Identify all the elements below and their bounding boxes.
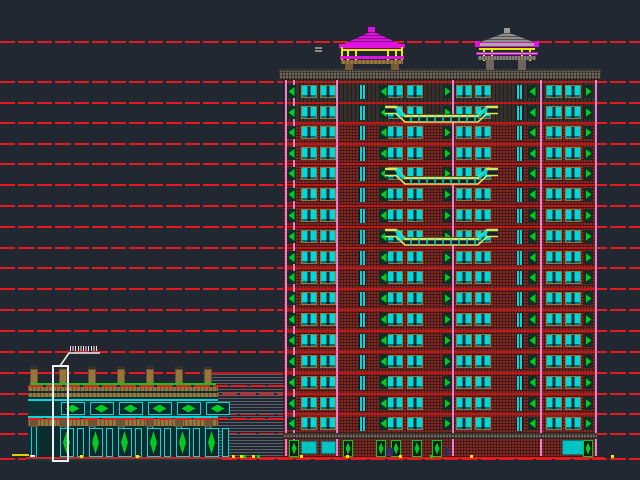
corner-window xyxy=(287,292,296,305)
vesica-ornament xyxy=(208,431,215,454)
slit-window xyxy=(359,397,366,411)
window-unit xyxy=(475,188,491,201)
window-unit xyxy=(301,126,317,139)
corner-window xyxy=(584,251,593,264)
corner-window xyxy=(528,313,537,326)
door-ornament xyxy=(435,443,440,455)
slit-window xyxy=(359,313,366,327)
corner-window xyxy=(379,313,388,326)
podium-side-panel xyxy=(222,428,229,457)
yellow-mark xyxy=(12,454,29,456)
slit-window xyxy=(359,292,366,306)
slit-window xyxy=(359,147,366,161)
pavilion-eave xyxy=(475,42,539,47)
pavilion-beam xyxy=(340,56,404,59)
balcony-railing xyxy=(384,104,499,123)
window-unit xyxy=(301,251,317,264)
tower-floor-slab-line xyxy=(284,81,596,83)
corner-window xyxy=(584,417,593,430)
window-unit xyxy=(475,313,491,326)
ground-dot xyxy=(80,455,83,458)
green-chevron-glyph xyxy=(445,253,451,262)
corner-window xyxy=(584,167,593,180)
window-unit xyxy=(387,147,403,160)
corner-window xyxy=(287,271,296,284)
corner-window xyxy=(379,355,388,368)
slit-window xyxy=(516,397,523,411)
window-unit xyxy=(546,188,562,201)
window-unit xyxy=(301,376,317,389)
corner-window xyxy=(443,292,452,305)
door-ornament xyxy=(292,443,297,455)
tower-axis-line xyxy=(452,80,454,456)
tower-floor-slab-line xyxy=(284,247,596,249)
window-ornament xyxy=(95,405,109,413)
window-unit xyxy=(301,188,317,201)
slit-window xyxy=(516,85,523,99)
ground-dot xyxy=(243,455,246,458)
tower-cornice xyxy=(279,69,601,80)
green-chevron-glyph xyxy=(586,378,592,387)
corner-window xyxy=(379,334,388,347)
window-unit xyxy=(387,355,403,368)
corner-window xyxy=(584,271,593,284)
window-unit xyxy=(475,376,491,389)
window-unit xyxy=(546,209,562,222)
corner-window xyxy=(287,167,296,180)
green-chevron-glyph xyxy=(381,378,387,387)
green-chevron-glyph xyxy=(586,87,592,96)
corner-window xyxy=(443,85,452,98)
window-unit xyxy=(320,334,336,347)
corner-window xyxy=(443,417,452,430)
window-unit xyxy=(407,209,423,222)
window-unit xyxy=(387,397,403,410)
green-chevron-glyph xyxy=(289,190,295,199)
tower-floor-slab-line xyxy=(284,163,596,165)
green-chevron-glyph xyxy=(289,294,295,303)
window-unit xyxy=(456,209,472,222)
window-unit xyxy=(546,251,562,264)
green-chevron-glyph xyxy=(530,108,536,117)
window-unit xyxy=(320,271,336,284)
slit-window xyxy=(516,355,523,369)
window-unit xyxy=(407,251,423,264)
podium-side-panel xyxy=(106,428,113,457)
window-unit xyxy=(456,397,472,410)
slit-window xyxy=(359,106,366,120)
window-unit xyxy=(546,106,562,119)
green-chevron-glyph xyxy=(381,253,387,262)
corner-window xyxy=(287,188,296,201)
corner-window xyxy=(287,85,296,98)
green-chevron-glyph xyxy=(381,190,387,199)
green-chevron-glyph xyxy=(530,294,536,303)
white-mark xyxy=(30,455,35,457)
tower-floor-slab-line xyxy=(284,413,596,415)
green-chevron-glyph xyxy=(289,419,295,428)
window-unit xyxy=(387,126,403,139)
pavilion-roof xyxy=(342,31,402,45)
corner-window xyxy=(584,313,593,326)
window-unit xyxy=(407,376,423,389)
window-unit xyxy=(301,85,317,98)
window-unit xyxy=(301,397,317,410)
window-unit xyxy=(407,355,423,368)
green-chevron-glyph xyxy=(381,273,387,282)
podium-window xyxy=(90,402,114,415)
green-chevron-glyph xyxy=(530,190,536,199)
corner-window xyxy=(528,334,537,347)
vesica-ornament xyxy=(179,431,186,454)
green-chevron-glyph xyxy=(289,108,295,117)
corner-window xyxy=(528,355,537,368)
corner-window xyxy=(584,188,593,201)
corner-window xyxy=(528,209,537,222)
window-unit xyxy=(456,292,472,305)
window-ornament xyxy=(153,405,167,413)
green-chevron-glyph xyxy=(586,169,592,178)
slit-window xyxy=(359,209,366,223)
window-unit xyxy=(301,209,317,222)
window-unit xyxy=(475,417,491,430)
window-unit xyxy=(301,271,317,284)
window-unit xyxy=(565,230,581,243)
slit-window xyxy=(359,417,366,431)
tower-floor-slab-line xyxy=(284,372,596,374)
window-unit xyxy=(387,85,403,98)
slit-window xyxy=(516,209,523,223)
cad-drawing-canvas[interactable] xyxy=(0,0,640,480)
window-unit xyxy=(456,417,472,430)
door-ornament xyxy=(415,443,420,455)
window-unit xyxy=(546,292,562,305)
window-unit xyxy=(301,292,317,305)
window-unit xyxy=(475,292,491,305)
corner-window xyxy=(379,126,388,139)
window-unit xyxy=(565,271,581,284)
corner-window xyxy=(584,376,593,389)
green-chevron-glyph xyxy=(289,87,295,96)
window-unit xyxy=(475,209,491,222)
ground-dot xyxy=(430,455,433,458)
window-unit xyxy=(407,85,423,98)
corner-window xyxy=(528,271,537,284)
window-unit xyxy=(387,313,403,326)
detail-callout-box xyxy=(52,365,69,462)
corner-window xyxy=(528,188,537,201)
corner-window xyxy=(379,271,388,284)
slit-window xyxy=(516,271,523,285)
green-chevron-glyph xyxy=(445,211,451,220)
window-unit xyxy=(565,85,581,98)
slit-window xyxy=(359,126,366,140)
corner-window xyxy=(287,376,296,389)
window-unit xyxy=(320,251,336,264)
green-chevron-glyph xyxy=(586,419,592,428)
window-unit xyxy=(320,188,336,201)
balcony-railing xyxy=(384,166,499,185)
window-unit xyxy=(387,334,403,347)
window-unit xyxy=(456,376,472,389)
podium-side-panel xyxy=(135,428,142,457)
window-unit xyxy=(565,355,581,368)
ground-dot xyxy=(252,455,255,458)
window-unit xyxy=(546,355,562,368)
window-unit xyxy=(565,334,581,347)
green-chevron-glyph xyxy=(530,378,536,387)
pavilion-eave-tip xyxy=(534,41,539,47)
entrance-door xyxy=(432,440,442,457)
green-chevron-glyph xyxy=(586,232,592,241)
green-chevron-glyph xyxy=(445,336,451,345)
green-chevron-glyph xyxy=(530,273,536,282)
corner-window xyxy=(379,397,388,410)
corner-window xyxy=(528,167,537,180)
ground-dot xyxy=(232,455,235,458)
callout-label-ticks xyxy=(70,346,98,351)
window-unit xyxy=(320,292,336,305)
corner-window xyxy=(528,292,537,305)
green-chevron-glyph xyxy=(381,399,387,408)
slit-window xyxy=(516,167,523,181)
green-chevron-glyph xyxy=(586,336,592,345)
podium-door-panel xyxy=(176,428,190,457)
podium-door-panel xyxy=(147,428,161,457)
ground-dot xyxy=(346,455,349,458)
window-unit xyxy=(475,334,491,347)
entrance-door xyxy=(289,440,299,457)
window-unit xyxy=(546,313,562,326)
corner-window xyxy=(584,292,593,305)
person-figure xyxy=(446,447,449,456)
corner-window xyxy=(443,209,452,222)
green-chevron-glyph xyxy=(586,294,592,303)
window-unit xyxy=(407,417,423,430)
pavilion-beam xyxy=(476,52,538,55)
corner-window xyxy=(528,85,537,98)
window-unit xyxy=(407,271,423,284)
podium-pilaster-cap xyxy=(146,366,154,384)
slit-window xyxy=(516,251,523,265)
slit-window xyxy=(516,313,523,327)
corner-window xyxy=(584,85,593,98)
window-unit xyxy=(546,397,562,410)
window-unit xyxy=(546,334,562,347)
green-chevron-glyph xyxy=(289,211,295,220)
window-ornament xyxy=(182,405,196,413)
corner-window xyxy=(443,397,452,410)
window-unit xyxy=(320,106,336,119)
window-unit xyxy=(407,313,423,326)
corner-window xyxy=(287,417,296,430)
green-chevron-glyph xyxy=(586,357,592,366)
green-chevron-glyph xyxy=(289,232,295,241)
podium-pilaster-cap xyxy=(175,366,183,384)
window-unit xyxy=(456,271,472,284)
corner-window xyxy=(287,251,296,264)
green-chevron-glyph xyxy=(381,149,387,158)
window-unit xyxy=(546,417,562,430)
green-chevron-glyph xyxy=(530,357,536,366)
person-figure xyxy=(390,448,393,456)
corner-window xyxy=(443,334,452,347)
green-chevron-glyph xyxy=(289,253,295,262)
slit-window xyxy=(516,188,523,202)
window-unit xyxy=(475,85,491,98)
window-unit xyxy=(407,397,423,410)
corner-window xyxy=(584,230,593,243)
green-chevron-glyph xyxy=(586,315,592,324)
tower-lintel-band xyxy=(283,433,597,439)
window-unit xyxy=(475,147,491,160)
green-chevron-glyph xyxy=(530,128,536,137)
green-chevron-glyph xyxy=(445,87,451,96)
pavilion-eave-tip xyxy=(475,41,480,47)
corner-window xyxy=(443,126,452,139)
corner-window xyxy=(379,292,388,305)
window-unit xyxy=(565,376,581,389)
window-unit xyxy=(320,167,336,180)
green-chevron-glyph xyxy=(586,211,592,220)
window-unit xyxy=(320,313,336,326)
window-unit xyxy=(565,251,581,264)
green-chevron-glyph xyxy=(445,357,451,366)
green-chevron-glyph xyxy=(445,190,451,199)
podium-window xyxy=(177,402,201,415)
ground-dot xyxy=(399,455,402,458)
tower-floor-slab-line xyxy=(284,143,596,145)
door-ornament xyxy=(346,443,351,455)
vesica-ornament xyxy=(150,431,157,454)
corner-window xyxy=(443,376,452,389)
podium-pilaster xyxy=(31,427,37,458)
slit-window xyxy=(359,167,366,181)
corner-window xyxy=(287,313,296,326)
window-unit xyxy=(320,397,336,410)
window-unit xyxy=(301,313,317,326)
green-chevron-glyph xyxy=(530,315,536,324)
slit-window xyxy=(516,376,523,390)
green-chevron-glyph xyxy=(289,128,295,137)
window-unit xyxy=(387,417,403,430)
corner-window xyxy=(443,271,452,284)
window-unit xyxy=(387,188,403,201)
ground-dot xyxy=(470,455,473,458)
podium-door-panel xyxy=(205,428,219,457)
window-unit xyxy=(407,147,423,160)
slit-window xyxy=(359,271,366,285)
green-chevron-glyph xyxy=(289,149,295,158)
window-unit xyxy=(475,271,491,284)
window-unit xyxy=(565,313,581,326)
green-chevron-glyph xyxy=(445,378,451,387)
window-unit xyxy=(320,126,336,139)
pavilion-leg xyxy=(518,60,526,70)
green-chevron-glyph xyxy=(381,419,387,428)
podium-pilaster-cap xyxy=(30,366,38,384)
tower-floor-slab-line xyxy=(284,309,596,311)
green-chevron-glyph xyxy=(445,294,451,303)
corner-window xyxy=(528,376,537,389)
window-unit xyxy=(301,147,317,160)
corner-window xyxy=(287,106,296,119)
entrance-door xyxy=(583,440,593,457)
ground-dot xyxy=(136,455,139,458)
vesica-ornament xyxy=(121,431,128,454)
green-chevron-glyph xyxy=(289,399,295,408)
corner-window xyxy=(528,251,537,264)
window-unit xyxy=(475,126,491,139)
tower-axis-line xyxy=(336,80,338,456)
green-chevron-glyph xyxy=(445,399,451,408)
slit-window xyxy=(516,417,523,431)
equals-mark xyxy=(315,50,322,52)
pavilion-eave-trim xyxy=(479,48,535,50)
corner-window xyxy=(528,126,537,139)
podium-door-panel xyxy=(118,428,132,457)
green-chevron-glyph xyxy=(381,87,387,96)
corner-window xyxy=(379,251,388,264)
window-unit xyxy=(387,292,403,305)
corner-window xyxy=(528,106,537,119)
storefront-window xyxy=(301,441,317,454)
person-figure xyxy=(386,447,389,456)
tower-floor-slab-line xyxy=(284,393,596,395)
tower-floor-slab-line xyxy=(284,330,596,332)
door-ornament xyxy=(586,443,591,455)
green-chevron-glyph xyxy=(289,378,295,387)
window-unit xyxy=(301,355,317,368)
corner-window xyxy=(584,209,593,222)
window-unit xyxy=(546,376,562,389)
slit-window xyxy=(359,85,366,99)
window-unit xyxy=(565,147,581,160)
window-unit xyxy=(301,417,317,430)
slit-window xyxy=(516,334,523,348)
window-unit xyxy=(456,188,472,201)
slit-window xyxy=(359,230,366,244)
window-unit xyxy=(407,334,423,347)
green-chevron-glyph xyxy=(586,253,592,262)
podium-pilaster-cap xyxy=(204,366,212,384)
slit-window xyxy=(359,376,366,390)
podium-pilaster-cap xyxy=(117,366,125,384)
green-chevron-glyph xyxy=(530,211,536,220)
window-unit xyxy=(456,251,472,264)
podium-window xyxy=(119,402,143,415)
window-unit xyxy=(565,292,581,305)
window-unit xyxy=(301,334,317,347)
podium-side-panel xyxy=(77,428,84,457)
window-ornament xyxy=(211,405,225,413)
corner-window xyxy=(528,230,537,243)
window-unit xyxy=(565,209,581,222)
corner-window xyxy=(443,313,452,326)
corner-window xyxy=(287,397,296,410)
corner-window xyxy=(287,126,296,139)
door-ornament xyxy=(394,443,399,455)
pavilion-eave-trim xyxy=(341,49,403,51)
slit-window xyxy=(359,188,366,202)
green-chevron-glyph xyxy=(445,273,451,282)
ground-dot xyxy=(611,455,614,458)
tower-floor-slab-line xyxy=(284,351,596,353)
window-unit xyxy=(320,85,336,98)
slit-window xyxy=(359,355,366,369)
green-chevron-glyph xyxy=(289,357,295,366)
green-chevron-glyph xyxy=(530,232,536,241)
